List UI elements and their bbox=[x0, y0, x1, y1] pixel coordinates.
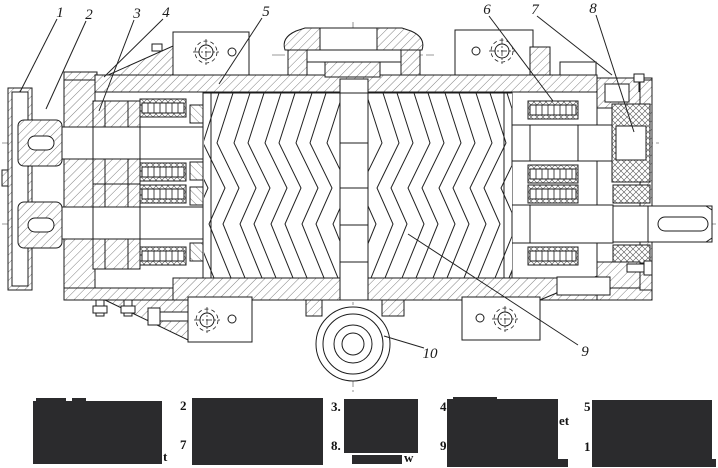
legend-item-5-redaction bbox=[592, 400, 712, 460]
legend-item-3-redaction bbox=[344, 399, 418, 453]
legend-text-fragment bbox=[453, 397, 497, 402]
foot-bolt-head bbox=[148, 308, 160, 325]
callout-10: 10 bbox=[423, 346, 439, 362]
timing-gears bbox=[93, 101, 140, 269]
legend-item-5-number: 5 bbox=[584, 400, 591, 413]
legend-text-fragment bbox=[72, 398, 86, 402]
page: 1 2 3 4 5 6 7 8 9 10 t 2 7 3. 8. w 4 9 e… bbox=[0, 0, 718, 468]
callout-9: 9 bbox=[581, 344, 589, 360]
legend-item-8-redaction bbox=[352, 455, 402, 464]
callout-5: 5 bbox=[262, 4, 270, 20]
lower-shaft-left bbox=[62, 207, 203, 239]
top-right-lug bbox=[455, 30, 533, 75]
upper-shaft-right bbox=[512, 125, 612, 161]
legend-item-9-number: 9 bbox=[440, 439, 447, 452]
sectional-drawing: 1 2 3 4 5 6 7 8 9 10 bbox=[0, 0, 718, 396]
legend-item-10-number: 1 bbox=[584, 440, 591, 453]
left-cover-plate bbox=[2, 88, 32, 290]
screw-rotors bbox=[172, 79, 537, 300]
legend-item-4-suffix: et bbox=[559, 414, 569, 427]
leader-line-1 bbox=[20, 19, 57, 92]
legend-item-8-suffix: w bbox=[404, 451, 413, 464]
cover-stud bbox=[152, 44, 162, 51]
output-keyway bbox=[658, 217, 708, 231]
legend-item-1-redaction bbox=[33, 401, 162, 464]
legend-item-7-number: 7 bbox=[180, 438, 187, 451]
callout-1: 1 bbox=[56, 5, 64, 21]
right-bottom-bolt bbox=[627, 264, 645, 272]
right-foot bbox=[462, 297, 540, 340]
legend-item-10-redaction bbox=[592, 459, 716, 467]
lower-keyway bbox=[28, 218, 54, 232]
callout-2: 2 bbox=[85, 7, 93, 23]
top-port bbox=[284, 28, 423, 77]
legend-item-8-number: 8. bbox=[331, 439, 341, 452]
callout-3: 3 bbox=[132, 6, 141, 22]
lower-shaft-right bbox=[512, 205, 613, 243]
top-left-lug bbox=[173, 32, 249, 75]
bearing-housing-pillar bbox=[530, 47, 550, 75]
legend-text-fragment bbox=[36, 398, 66, 402]
port-flange-center bbox=[320, 28, 377, 50]
callout-6: 6 bbox=[483, 2, 491, 18]
foot-bolt-shank bbox=[160, 312, 188, 321]
upper-keyway bbox=[28, 136, 54, 150]
legend-item-3-number: 3. bbox=[331, 400, 341, 413]
callout-4: 4 bbox=[162, 5, 170, 21]
legend-item-4-number: 4 bbox=[440, 400, 447, 413]
callout-7: 7 bbox=[531, 2, 540, 18]
legend-item-2-redaction bbox=[192, 398, 323, 465]
legend-item-9-redaction bbox=[447, 459, 568, 467]
legend-item-1-suffix: t bbox=[163, 450, 167, 463]
callout-8: 8 bbox=[589, 1, 597, 17]
legend-item-2-number: 2 bbox=[180, 399, 187, 412]
upper-shaft-left bbox=[62, 127, 203, 159]
center-web-column bbox=[340, 79, 368, 300]
legend-item-4-redaction bbox=[447, 399, 558, 460]
output-shaft bbox=[613, 206, 712, 242]
